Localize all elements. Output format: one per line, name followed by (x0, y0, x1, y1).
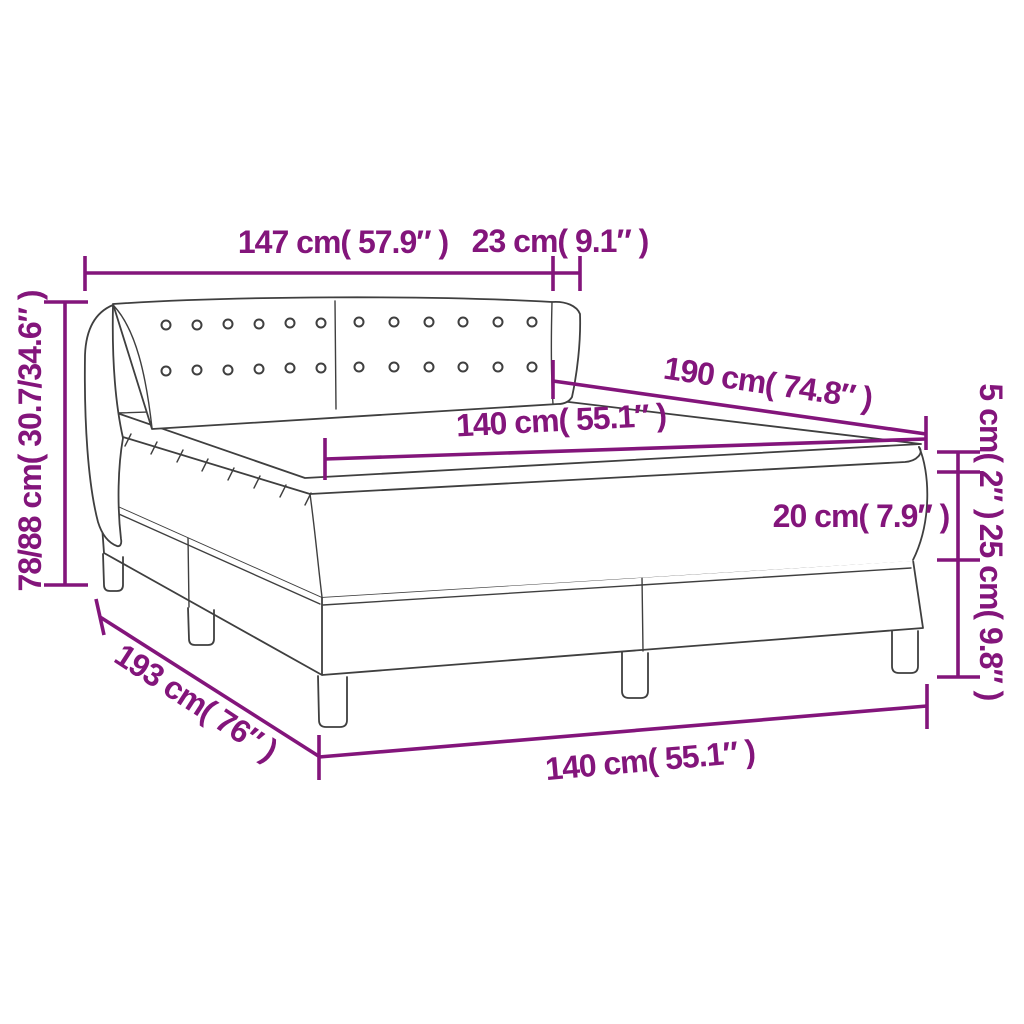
leg (188, 608, 214, 645)
leg (892, 631, 918, 673)
dim-label-topper-thickness: 5 cm( 2″ ) (973, 383, 1009, 519)
dim-label-base-height: 25 cm( 9.8″ ) (973, 524, 1009, 701)
leg (103, 554, 123, 591)
leg (318, 676, 347, 727)
dim-label-mattress-length: 190 cm( 74.8″ ) (661, 350, 875, 417)
dim-label-total-height: 78/88 cm( 30.7/34.6″ ) (12, 290, 48, 591)
dim-label-base-width: 140 cm( 55.1″ ) (544, 733, 757, 787)
diagram-canvas: 147 cm( 57.9″ ) 23 cm( 9.1″ ) 78/88 cm( … (0, 0, 1024, 1024)
dim-label-mattress-thickness: 20 cm( 7.9″ ) (773, 498, 950, 534)
dim-headboard-width-line (85, 256, 580, 291)
headboard-left-wing (85, 305, 123, 546)
headboard-divider (335, 301, 336, 409)
dim-total-height-line (44, 302, 88, 585)
dim-label-headboard-width: 147 cm( 57.9″ ) (238, 224, 449, 260)
bed-dimension-diagram: 147 cm( 57.9″ ) 23 cm( 9.1″ ) 78/88 cm( … (0, 0, 1024, 1024)
leg (622, 652, 648, 698)
dim-label-base-length: 193 cm( 76″ ) (108, 636, 284, 767)
dim-label-wing-depth: 23 cm( 9.1″ ) (472, 223, 649, 259)
